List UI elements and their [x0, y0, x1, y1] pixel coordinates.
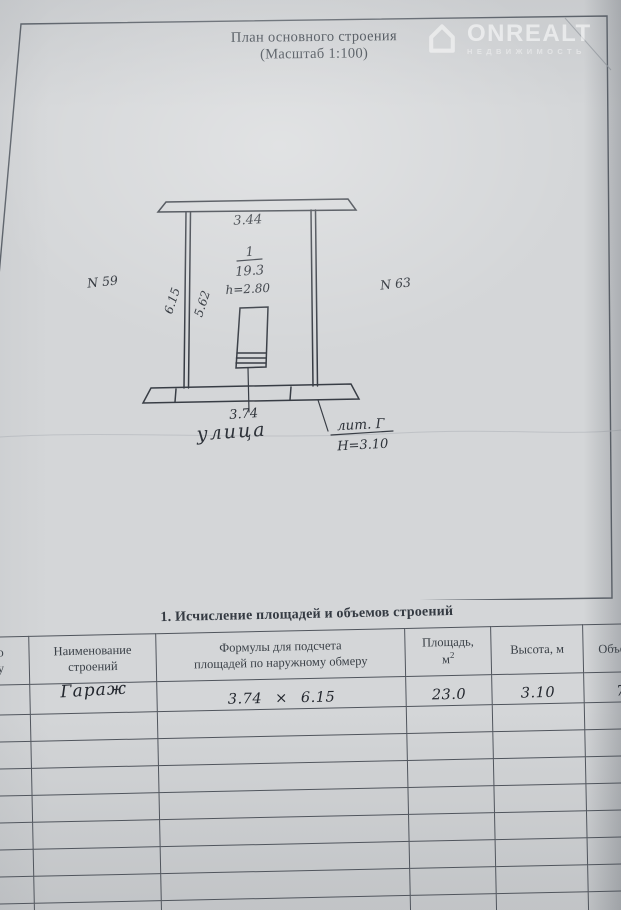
dim-left-inner-label: 5.62: [191, 289, 213, 319]
room-height-label: h=2.80: [225, 281, 271, 297]
room-number-label: 1: [245, 245, 254, 261]
parcel-left-label: N 59: [85, 272, 118, 290]
col-height-header: Высота, м: [491, 625, 584, 675]
room-area-label: 19.3: [235, 263, 265, 280]
col-formula-header: Формулы для подсчета площадей по наружно…: [156, 628, 406, 681]
floor-plan-drawing: 3.44 1 19.3 h=2.80 6.15 5.62 N 59 N 63 3…: [0, 0, 621, 600]
col-number-header: о у: [0, 636, 30, 685]
col-volume-header: Объем, м3: [583, 623, 621, 673]
col-area-header: Площадь, м2: [405, 627, 492, 677]
cell-height: 3.10: [492, 673, 585, 705]
col-name-header: Наименование строений: [29, 634, 157, 685]
scanned-document-page: 3.44 1 19.3 h=2.80 6.15 5.62 N 59 N 63 3…: [0, 0, 621, 910]
street-label: улица: [195, 419, 267, 446]
calc-table-section: 1. Исчисление площадей и объемов строени…: [0, 590, 621, 910]
paper-fold-line: [565, 18, 611, 70]
dim-left-outer-label: 6.15: [161, 286, 183, 316]
calc-table: о у Наименование строений Формулы для по…: [0, 622, 621, 910]
liter-height-label: Н=3.10: [336, 437, 389, 455]
parcel-right-label: N 63: [378, 274, 411, 292]
plan-title: План основного строения (Масштаб 1:100): [114, 27, 514, 65]
cell-name: Гараж: [30, 682, 158, 715]
plan-frame-border: [0, 16, 612, 600]
cell-area: 23.0: [406, 675, 493, 707]
inspection-pit: [236, 307, 268, 368]
liter-label: лит. Г: [337, 416, 386, 435]
top-wall: [158, 199, 356, 212]
dim-top-label: 3.44: [233, 212, 263, 228]
cell-volume: 71: [584, 671, 621, 703]
paper-crease-line: [0, 430, 621, 437]
